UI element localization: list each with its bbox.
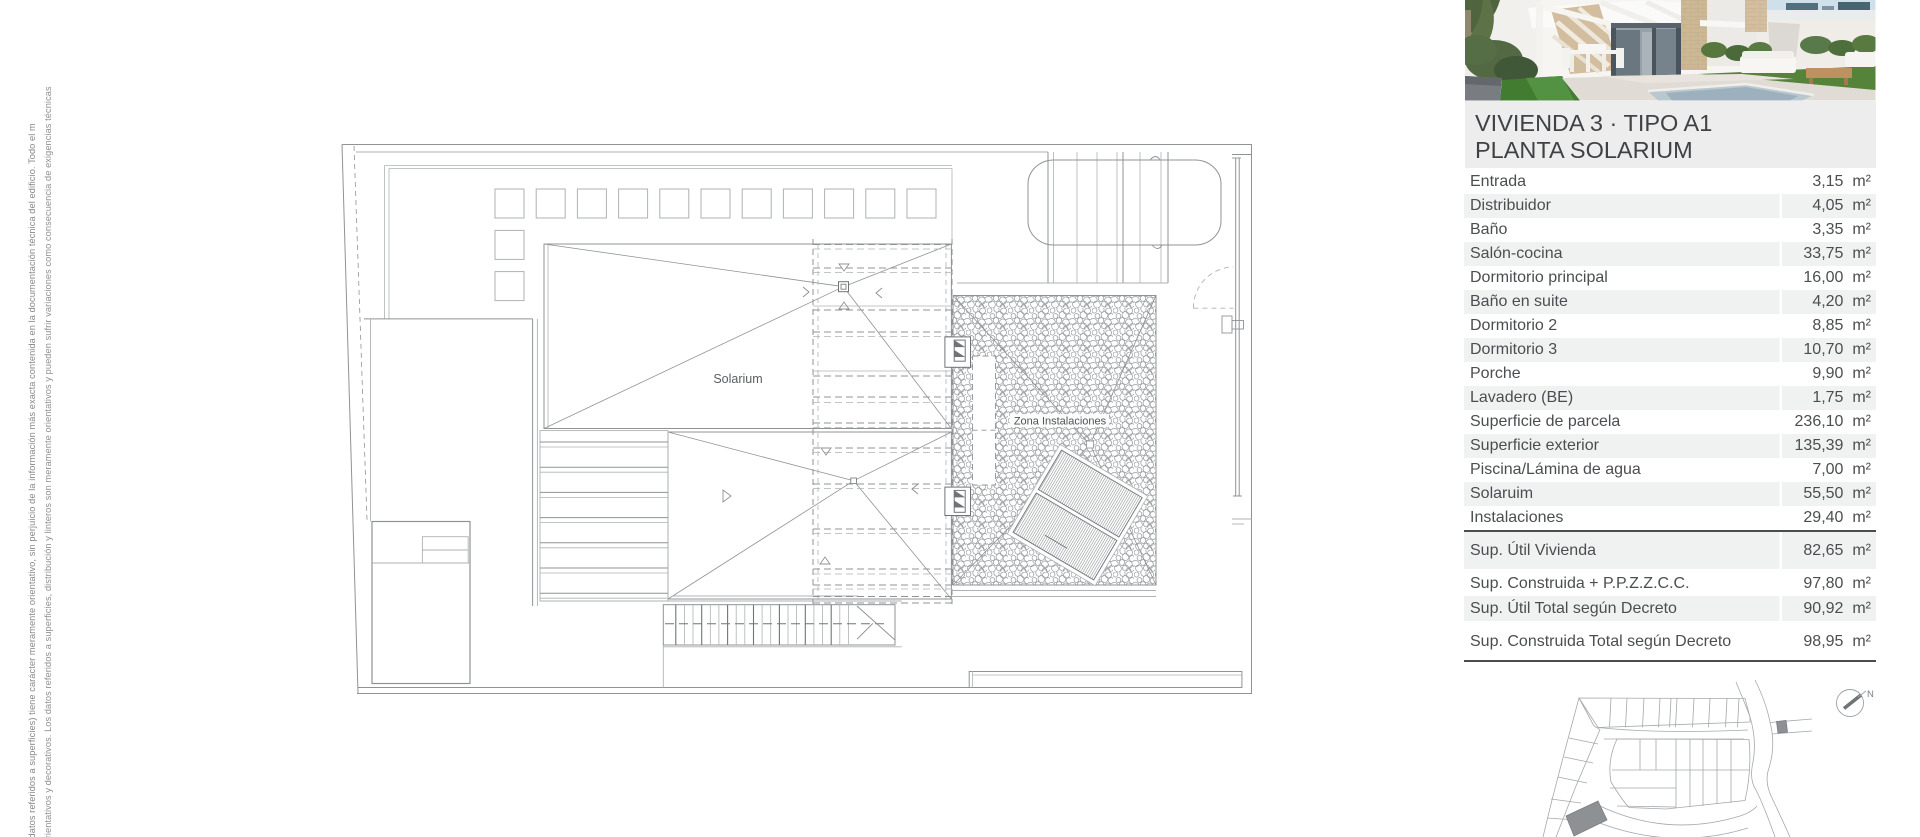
svg-text:Solarium: Solarium xyxy=(713,372,762,386)
svg-text:N: N xyxy=(1867,689,1874,700)
svg-text:Zona Instalaciones: Zona Instalaciones xyxy=(1014,416,1107,428)
